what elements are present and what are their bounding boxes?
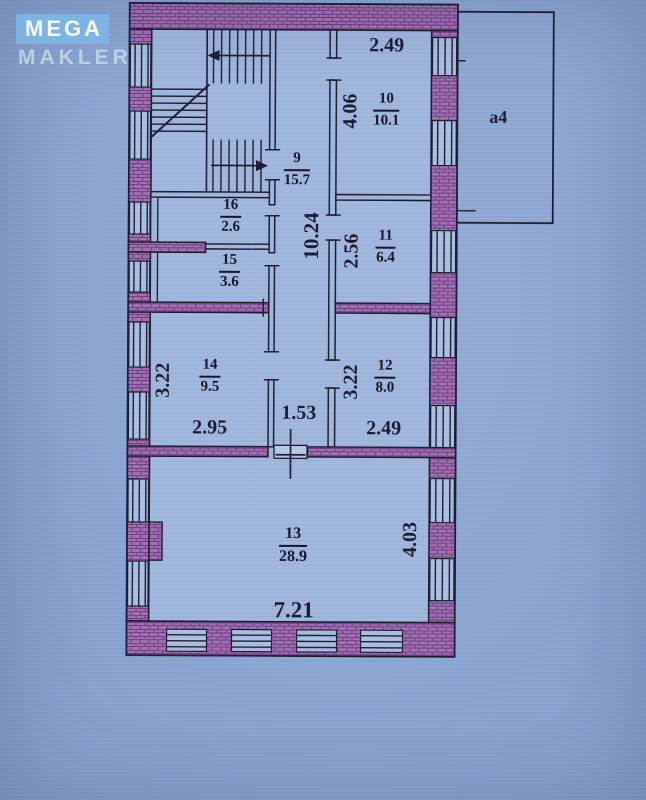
logo-subtitle: MAKLER [16,46,132,69]
dim-top-width: 2.49 [369,35,404,55]
window [360,630,402,652]
window [231,630,271,652]
room-16-area: 2.6 [220,217,241,236]
dim-corridor-width: 1.53 [281,403,316,423]
room-15-number: 15 [219,252,240,273]
corridor-left-wall [268,30,276,447]
right-wall-windows [430,38,457,601]
window [430,479,454,523]
dim-room14-width: 2.95 [192,417,227,437]
room-13-number: 13 [279,525,307,547]
room-9-number: 9 [284,150,310,171]
interior-wall [129,242,206,252]
window [129,202,150,234]
annex-label: а4 [489,108,507,126]
window [432,121,456,166]
interior-wall [335,303,430,313]
room-9-area: 15.7 [284,171,310,190]
interior-wall [127,446,268,457]
window [130,111,151,159]
floor-plan: 2.49 4.06 10.24 2.56 3.22 2.95 1.53 3.22… [0,0,646,800]
staircase-bottom-wall [151,192,270,198]
window [128,392,149,439]
logo-title: MEGA [16,14,109,44]
stair-divider [206,29,207,191]
floor-plan-drawing [0,0,646,800]
pilaster [149,522,162,560]
interior-wall [128,302,269,313]
interior-wall [206,244,270,249]
megamakler-logo: MEGA MAKLER [16,14,132,69]
dim-room13-height: 4.03 [400,522,420,557]
room-10-label: 10 10.1 [373,91,399,131]
room-12-number: 12 [374,358,395,379]
room-10-area: 10.1 [373,111,399,130]
window [128,479,149,522]
room-14-number: 14 [199,357,220,378]
window [430,559,454,601]
window [432,38,456,76]
window [128,561,149,606]
dim-room14-height: 3.22 [153,363,173,398]
room-11-label: 11 6.4 [375,228,395,267]
room-11-area: 6.4 [375,248,395,267]
room-9-label: 9 15.7 [284,150,310,190]
top-wall [130,3,458,31]
window [431,231,455,273]
room-15-area: 3.6 [219,272,240,291]
room-12-label: 12 8.0 [374,358,395,397]
floor-plan-photo: MEGA MAKLER [0,0,646,800]
room-13-area: 28.9 [279,547,307,567]
interior-wall [336,195,431,201]
window [431,318,455,358]
room-16-number: 16 [220,197,241,218]
room-13-label: 13 28.9 [279,525,307,567]
dim-room12-height: 3.22 [341,365,361,400]
window [129,322,150,367]
window [166,629,206,651]
window [129,261,150,292]
window [130,44,151,87]
room-12-area: 8.0 [374,378,395,397]
room-10-number: 10 [373,91,399,112]
left-wall-windows [128,44,151,606]
room-14-area: 9.5 [199,377,220,396]
dim-corridor-length: 10.24 [301,212,322,259]
window [296,630,336,652]
room-14-label: 14 9.5 [199,357,220,396]
room-15-label: 15 3.6 [219,252,240,291]
dim-room12-width: 2.49 [366,418,401,438]
dim-room11-height: 2.56 [341,234,361,269]
interior-wall [307,447,455,458]
dim-room13-width: 7.21 [274,598,314,621]
room-11-number: 11 [375,228,395,249]
room-16-label: 16 2.6 [220,197,241,236]
window [431,406,455,449]
dim-room10-height: 4.06 [340,94,360,129]
